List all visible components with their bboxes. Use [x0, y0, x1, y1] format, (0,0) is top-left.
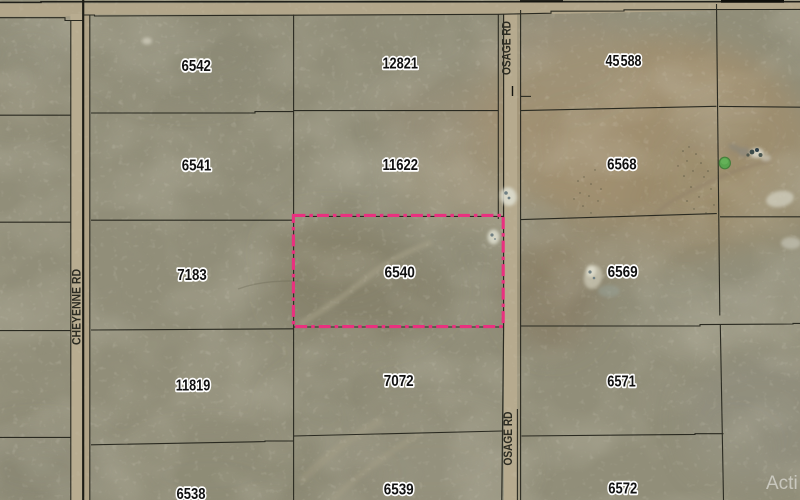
svg-text:45588: 45588 — [606, 53, 642, 70]
svg-text:CHEYENNE RD: CHEYENNE RD — [72, 269, 84, 345]
svg-text:6572: 6572 — [608, 481, 637, 498]
svg-text:OSAGE RD: OSAGE RD — [503, 412, 515, 466]
svg-text:Acti: Acti — [766, 473, 798, 494]
svg-text:6568: 6568 — [607, 157, 637, 174]
svg-text:6539: 6539 — [384, 482, 414, 499]
svg-text:6569: 6569 — [608, 264, 638, 281]
svg-text:6541: 6541 — [182, 158, 212, 175]
svg-text:11622: 11622 — [382, 157, 418, 174]
svg-text:6540: 6540 — [384, 264, 415, 281]
svg-text:OSAGE RD: OSAGE RD — [502, 21, 514, 75]
svg-text:7183: 7183 — [177, 267, 207, 284]
svg-text:6542: 6542 — [181, 58, 211, 75]
svg-text:7072: 7072 — [384, 373, 414, 390]
svg-text:11819: 11819 — [176, 377, 211, 394]
svg-text:6571: 6571 — [607, 373, 636, 390]
svg-text:12821: 12821 — [382, 56, 418, 73]
svg-text:6538: 6538 — [177, 486, 206, 500]
